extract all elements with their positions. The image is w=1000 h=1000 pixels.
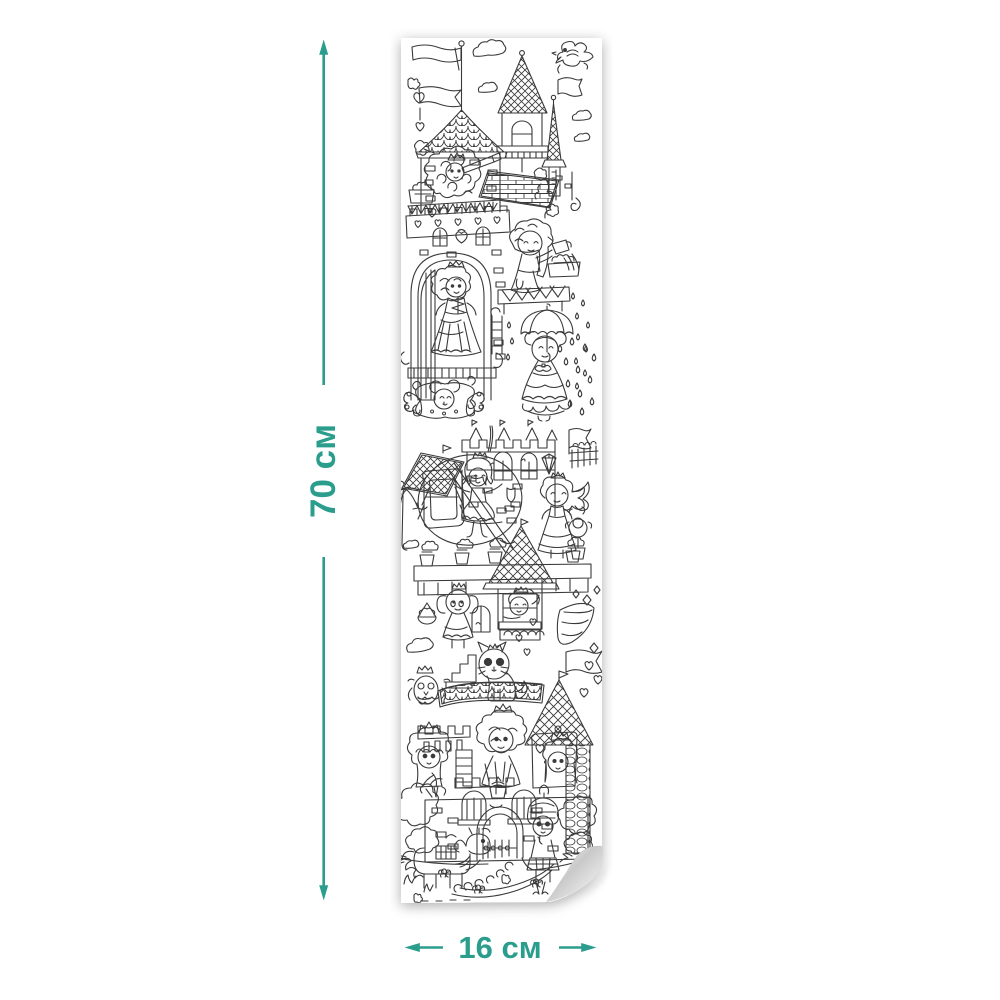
svg-text:70 см: 70 см bbox=[304, 424, 343, 518]
svg-text:16 см: 16 см bbox=[458, 930, 541, 965]
